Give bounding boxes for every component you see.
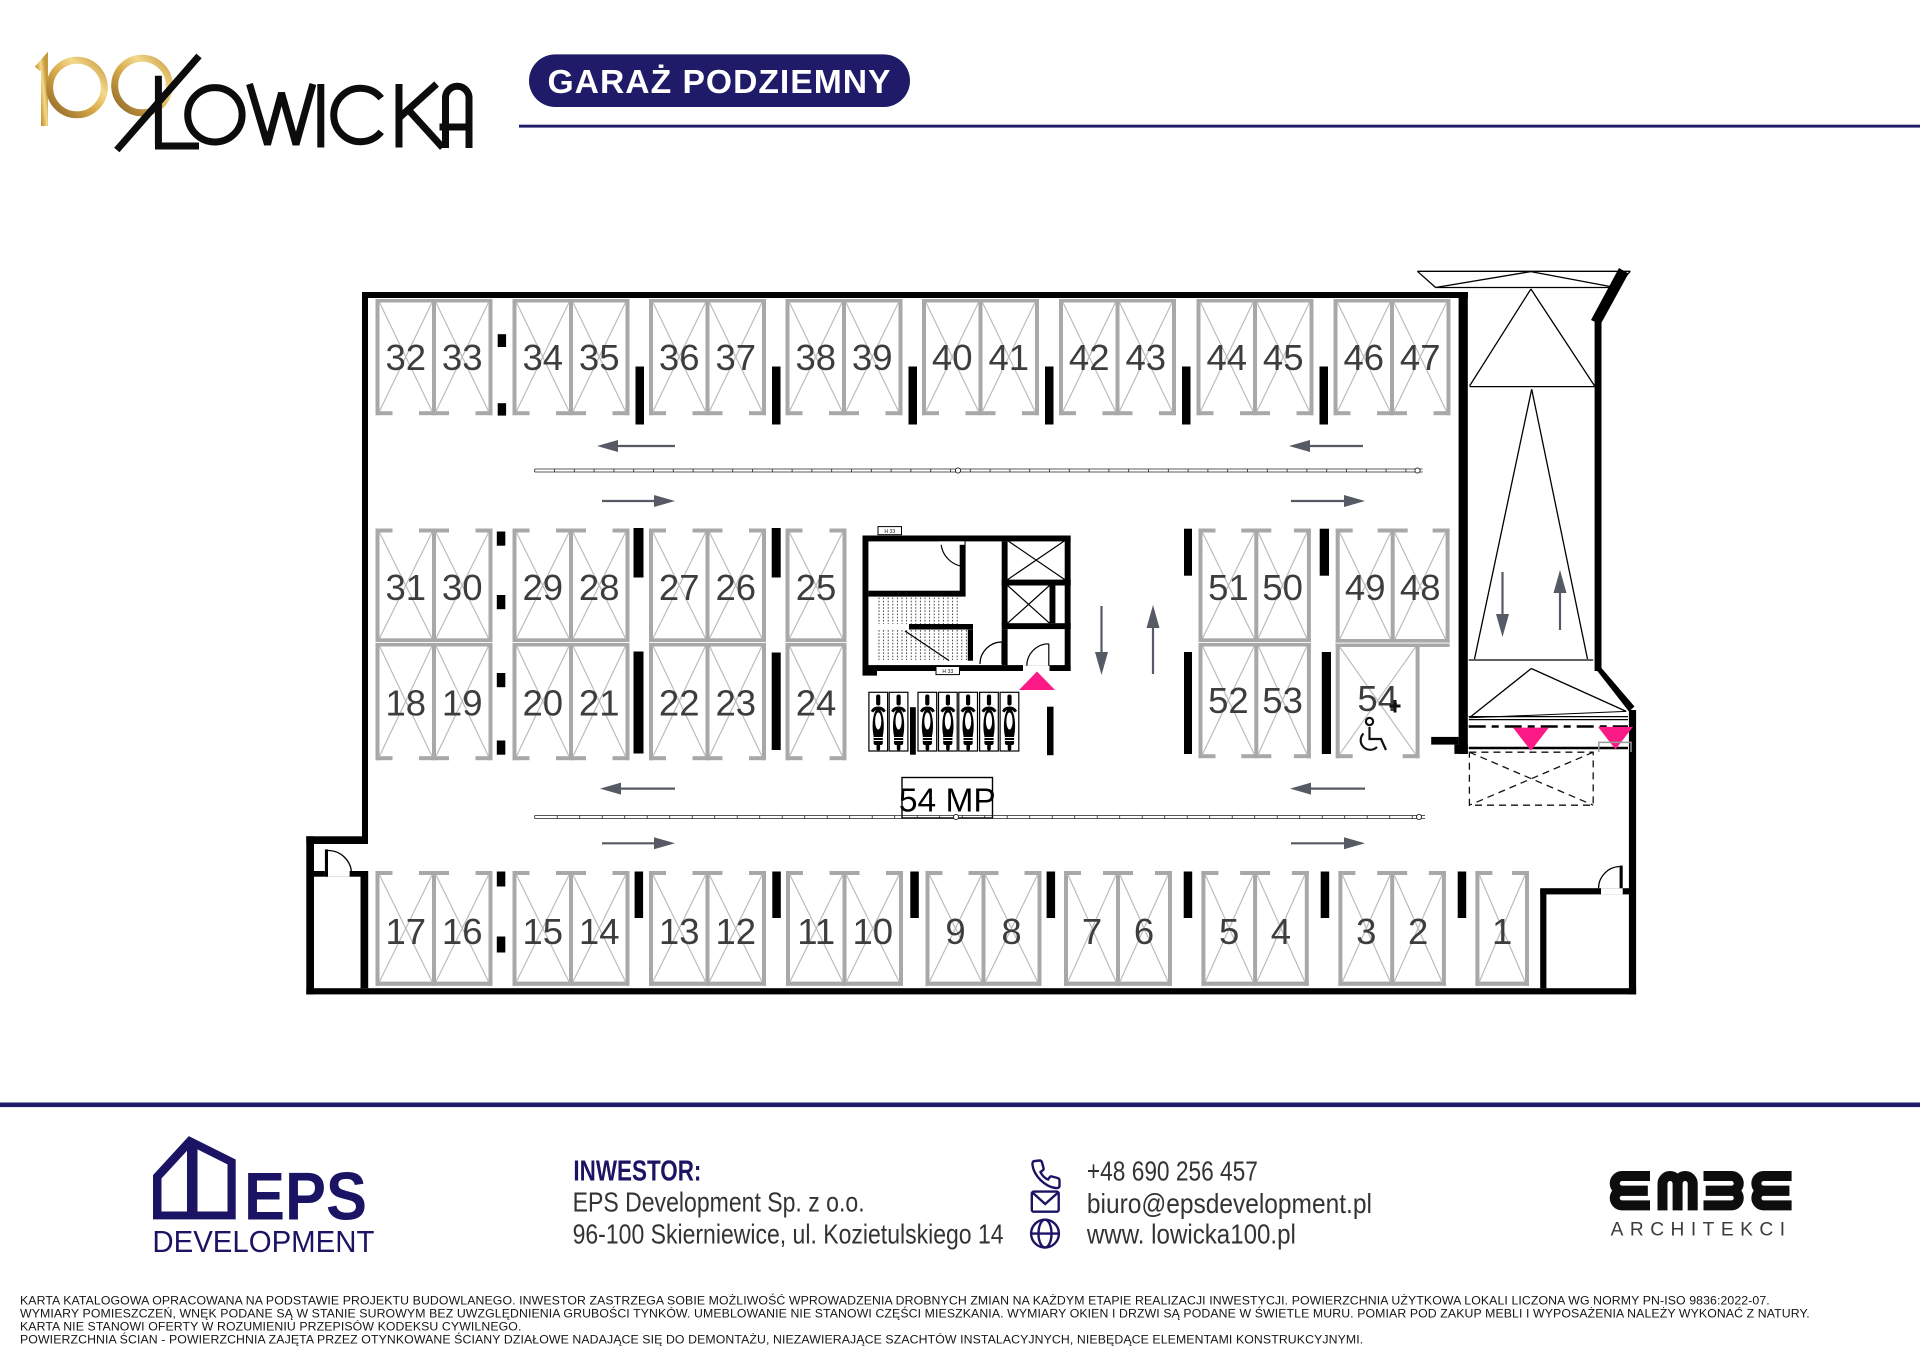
svg-text:31: 31 [385, 567, 426, 608]
svg-text:34: 34 [522, 337, 563, 378]
svg-text:INWESTOR:: INWESTOR: [573, 1155, 701, 1187]
svg-text:16: 16 [442, 911, 483, 952]
svg-text:15: 15 [522, 911, 563, 952]
svg-text:EPS Development Sp. z o.o.: EPS Development Sp. z o.o. [573, 1187, 865, 1218]
svg-text:54 MP: 54 MP [899, 783, 996, 820]
svg-text:www. lowicka100.pl: www. lowicka100.pl [1086, 1218, 1296, 1249]
svg-text:51: 51 [1208, 567, 1249, 608]
svg-text:6: 6 [1134, 911, 1154, 952]
svg-text:53: 53 [1262, 680, 1303, 721]
svg-text:1: 1 [1492, 911, 1512, 952]
svg-text:POWIERZCHNIA ŚCIAN - POWIERZCH: POWIERZCHNIA ŚCIAN - POWIERZCHNIA ZAJĘTA… [20, 1332, 1363, 1347]
svg-text:49: 49 [1345, 567, 1386, 608]
svg-text:47: 47 [1400, 337, 1441, 378]
svg-text:38: 38 [795, 337, 836, 378]
svg-text:54: 54 [1357, 678, 1398, 719]
svg-text:50: 50 [1262, 567, 1303, 608]
svg-text:32: 32 [385, 337, 426, 378]
svg-text:+48 690 256 457: +48 690 256 457 [1087, 1155, 1258, 1186]
svg-text:H 33: H 33 [942, 669, 953, 675]
svg-text:30: 30 [442, 567, 483, 608]
svg-text:37: 37 [715, 337, 756, 378]
svg-text:KARTA NIE STANOWI OFERTY W ROZ: KARTA NIE STANOWI OFERTY W ROZUMIENIU PR… [20, 1319, 522, 1334]
svg-text:ARCHITEKCI: ARCHITEKCI [1611, 1219, 1792, 1241]
svg-text:41: 41 [988, 337, 1029, 378]
svg-text:43: 43 [1125, 337, 1166, 378]
svg-text:28: 28 [579, 567, 620, 608]
svg-text:H 33: H 33 [884, 529, 895, 535]
svg-text:44: 44 [1206, 337, 1247, 378]
svg-text:5: 5 [1219, 911, 1239, 952]
svg-text:14: 14 [579, 911, 620, 952]
svg-text:23: 23 [715, 683, 756, 724]
svg-text:17: 17 [385, 911, 426, 952]
svg-text:KARTA KATALOGOWA OPRACOWANA NA: KARTA KATALOGOWA OPRACOWANA NA PODSTAWIE… [20, 1293, 1770, 1308]
svg-text:26: 26 [715, 567, 756, 608]
svg-text:3: 3 [1356, 911, 1376, 952]
svg-text:46: 46 [1343, 337, 1384, 378]
svg-text:biuro@epsdevelopment.pl: biuro@epsdevelopment.pl [1087, 1188, 1372, 1219]
svg-text:27: 27 [659, 567, 700, 608]
svg-text:52: 52 [1208, 680, 1249, 721]
svg-text:12: 12 [715, 911, 756, 952]
svg-text:35: 35 [579, 337, 620, 378]
svg-text:22: 22 [659, 683, 700, 724]
svg-text:WYMIARY POMIESZCZEŃ, WNĘK PODA: WYMIARY POMIESZCZEŃ, WNĘK PODANE SĄ W ST… [20, 1306, 1810, 1321]
svg-text:45: 45 [1263, 337, 1304, 378]
svg-text:7: 7 [1082, 911, 1102, 952]
svg-text:24: 24 [796, 683, 837, 724]
svg-text:40: 40 [932, 337, 973, 378]
svg-text:18: 18 [385, 683, 426, 724]
svg-text:21: 21 [579, 683, 620, 724]
svg-text:25: 25 [796, 567, 837, 608]
svg-text:20: 20 [522, 683, 563, 724]
svg-text:11: 11 [797, 911, 835, 952]
svg-text:DEVELOPMENT: DEVELOPMENT [152, 1224, 374, 1259]
svg-text:GARAŻ PODZIEMNY: GARAŻ PODZIEMNY [548, 64, 892, 101]
svg-text:4: 4 [1271, 911, 1291, 952]
svg-text:96-100 Skierniewice, ul. Kozie: 96-100 Skierniewice, ul. Kozietulskiego … [573, 1218, 1004, 1249]
svg-text:8: 8 [1001, 911, 1021, 952]
svg-text:19: 19 [442, 683, 483, 724]
svg-text:13: 13 [659, 911, 700, 952]
svg-text:36: 36 [659, 337, 700, 378]
svg-text:29: 29 [522, 567, 563, 608]
svg-text:10: 10 [852, 911, 893, 952]
svg-text:33: 33 [442, 337, 483, 378]
svg-text:48: 48 [1400, 567, 1441, 608]
svg-text:2: 2 [1408, 911, 1428, 952]
svg-text:9: 9 [945, 911, 965, 952]
svg-text:39: 39 [852, 337, 893, 378]
svg-text:42: 42 [1069, 337, 1110, 378]
